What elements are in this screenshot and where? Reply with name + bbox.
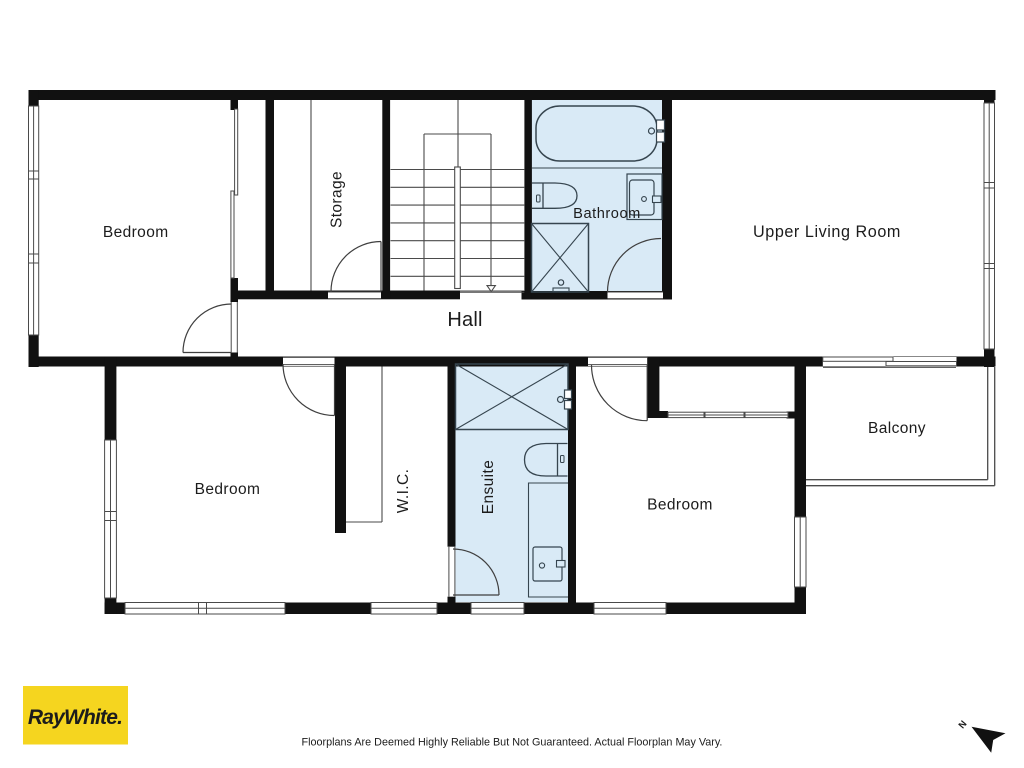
- svg-text:Bedroom: Bedroom: [103, 224, 169, 241]
- svg-text:Bedroom: Bedroom: [195, 481, 261, 498]
- svg-text:Bedroom: Bedroom: [647, 497, 713, 514]
- svg-text:Bathroom: Bathroom: [573, 206, 641, 222]
- svg-text:Storage: Storage: [329, 171, 346, 228]
- svg-text:Floorplans Are Deemed Highly R: Floorplans Are Deemed Highly Reliable Bu…: [302, 737, 723, 749]
- svg-text:Upper Living Room: Upper Living Room: [753, 223, 901, 241]
- svg-text:RayWhite.: RayWhite.: [28, 706, 122, 729]
- svg-text:Ensuite: Ensuite: [480, 460, 497, 515]
- svg-text:W.I.C.: W.I.C.: [395, 469, 412, 514]
- svg-text:Hall: Hall: [447, 309, 482, 331]
- svg-text:Balcony: Balcony: [868, 420, 926, 437]
